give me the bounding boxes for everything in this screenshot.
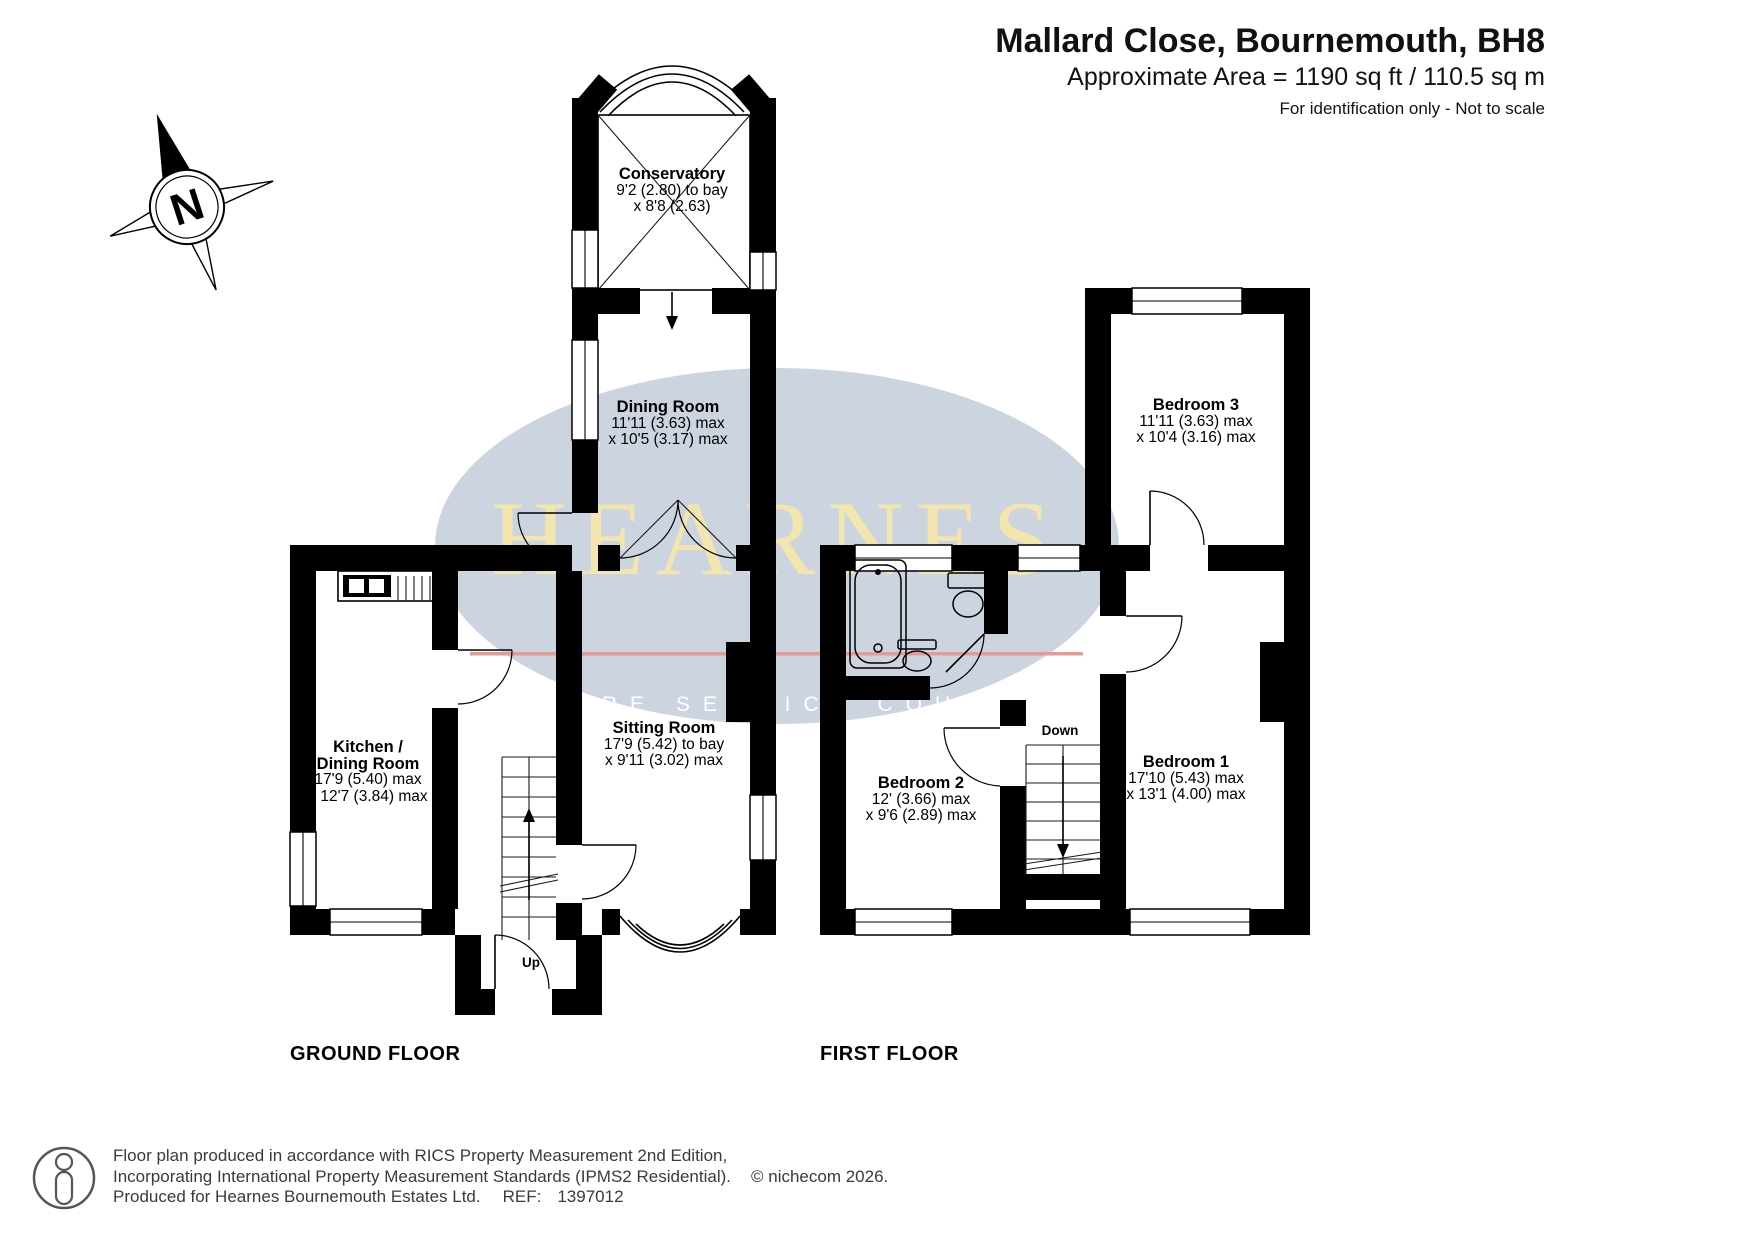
room-label-bedroom-1: Bedroom 1 17'10 (5.43) max x 13'1 (4.00)… bbox=[1126, 754, 1245, 804]
room-label-kitchen-dining-room: Kitchen / Dining Room 17'9 (5.40) max x … bbox=[308, 739, 427, 805]
footer-copyright: © nichecom 2026. bbox=[751, 1167, 888, 1186]
ground-floor-label: GROUND FLOOR bbox=[290, 1043, 460, 1066]
room-dim: x 12'7 (3.84) max bbox=[308, 789, 427, 806]
room-dim: 9'2 (2.80) to bay bbox=[616, 183, 728, 200]
stairs-ground bbox=[500, 757, 558, 940]
room-name: Dining Room bbox=[608, 399, 727, 416]
room-dim: 11'11 (3.63) max bbox=[608, 416, 727, 433]
room-dim: 17'10 (5.43) max bbox=[1126, 771, 1245, 788]
bay-window bbox=[620, 916, 740, 952]
footer: Floor plan produced in accordance with R… bbox=[113, 1146, 888, 1208]
room-label-conservatory: Conservatory 9'2 (2.80) to bay x 8'8 (2.… bbox=[616, 166, 728, 216]
footer-produced-for: Produced for Hearnes Bournemouth Estates… bbox=[113, 1187, 481, 1206]
header: Mallard Close, Bournemouth, BH8 Approxim… bbox=[995, 22, 1545, 120]
room-name: Dining Room bbox=[308, 756, 427, 773]
room-dim: x 10'4 (3.16) max bbox=[1136, 430, 1255, 447]
chimney-breast-first bbox=[1260, 642, 1284, 722]
page-title: Mallard Close, Bournemouth, BH8 bbox=[995, 22, 1545, 60]
floorplan-page: HEARNES WHERE SERVICE COUNTS N bbox=[0, 0, 1755, 1241]
room-dim: 17'9 (5.40) max bbox=[308, 772, 427, 789]
watermark-tagline: WHERE SERVICE COUNTS bbox=[514, 693, 1044, 716]
room-dim: x 10'5 (3.17) max bbox=[608, 432, 727, 449]
room-dim: x 8'8 (2.63) bbox=[616, 199, 728, 216]
room-name: Kitchen / bbox=[308, 739, 427, 756]
approximate-area: Approximate Area = 1190 sq ft / 110.5 sq… bbox=[995, 62, 1545, 92]
room-label-bedroom-3: Bedroom 3 11'11 (3.63) max x 10'4 (3.16)… bbox=[1136, 397, 1255, 447]
opening-arrow-icon bbox=[666, 292, 678, 330]
room-label-dining-room: Dining Room 11'11 (3.63) max x 10'5 (3.1… bbox=[608, 399, 727, 449]
footer-ipms-text: Incorporating International Property Mea… bbox=[113, 1167, 731, 1186]
compass-icon: N bbox=[79, 86, 300, 316]
footer-line-3: Produced for Hearnes Bournemouth Estates… bbox=[113, 1187, 888, 1208]
first-floor-label: FIRST FLOOR bbox=[820, 1043, 959, 1066]
footer-line-2: Incorporating International Property Mea… bbox=[113, 1167, 888, 1188]
person-icon bbox=[34, 1148, 94, 1208]
room-label-sitting-room: Sitting Room 17'9 (5.42) to bay x 9'11 (… bbox=[604, 720, 724, 770]
room-dim: x 9'11 (3.02) max bbox=[604, 753, 724, 770]
disclaimer: For identification only - Not to scale bbox=[995, 98, 1545, 120]
room-dim: x 9'6 (2.89) max bbox=[866, 808, 977, 825]
room-name: Bedroom 1 bbox=[1126, 754, 1245, 771]
room-dim: 17'9 (5.42) to bay bbox=[604, 737, 724, 754]
room-name: Bedroom 2 bbox=[866, 775, 977, 792]
chimney-breast-ground bbox=[726, 642, 750, 722]
stairs-up-label: Up bbox=[522, 955, 540, 970]
room-dim: x 13'1 (4.00) max bbox=[1126, 787, 1245, 804]
footer-ref-value: 1397012 bbox=[557, 1187, 623, 1206]
sink-unit-icon bbox=[338, 571, 435, 601]
room-name: Conservatory bbox=[616, 166, 728, 183]
footer-ref-label: REF: bbox=[503, 1187, 542, 1206]
conservatory-bay-arch bbox=[584, 66, 764, 116]
room-label-bedroom-2: Bedroom 2 12' (3.66) max x 9'6 (2.89) ma… bbox=[866, 775, 977, 825]
room-dim: 11'11 (3.63) max bbox=[1136, 414, 1255, 431]
footer-line-1: Floor plan produced in accordance with R… bbox=[113, 1146, 888, 1167]
stairs-down-label: Down bbox=[1042, 723, 1079, 738]
room-name: Bedroom 3 bbox=[1136, 397, 1255, 414]
room-name: Sitting Room bbox=[604, 720, 724, 737]
room-dim: 12' (3.66) max bbox=[866, 792, 977, 809]
